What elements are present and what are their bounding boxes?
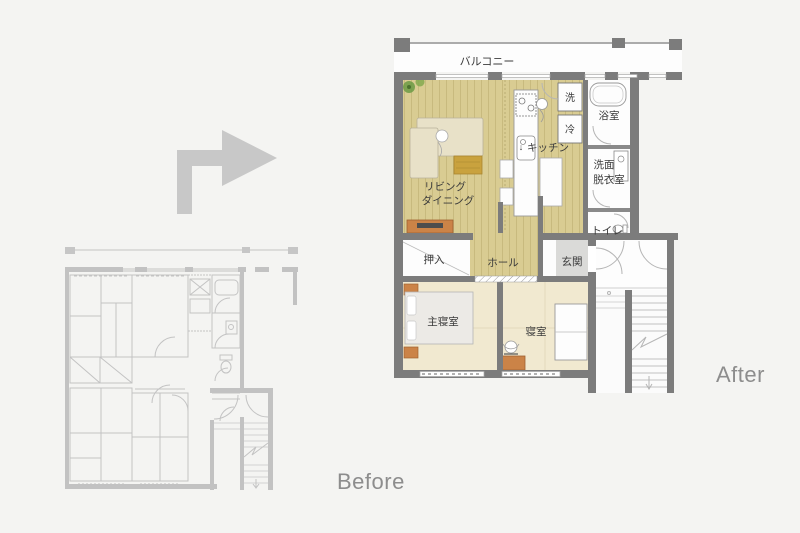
after-sliding-door <box>475 276 537 282</box>
room-label-living-1: リビング <box>424 180 466 193</box>
room-label-toilet: トイレ <box>591 225 623 237</box>
transform-arrow-icon <box>177 130 277 214</box>
room-label-bath: 浴室 <box>599 109 620 122</box>
room-label-hall: ホール <box>487 257 519 269</box>
room-label-washroom-1: 洗面 <box>594 159 615 171</box>
room-label-closet: 押入 <box>424 253 445 266</box>
before-floorplan <box>60 243 300 513</box>
after-caption: After <box>716 362 765 388</box>
room-label-kitchen: キッチン <box>527 142 569 154</box>
room-label-balcony: バルコニー <box>460 55 515 68</box>
room-label-bedroom: 寝室 <box>526 325 547 338</box>
room-label-entrance: 玄関 <box>562 255 583 268</box>
room-label-washroom-2: 脱衣室 <box>593 173 625 186</box>
room-label-fridge: 冷 <box>565 123 575 136</box>
room-label-living-2: ダイニング <box>422 194 475 207</box>
kitchen-arrow-icon: ↓ <box>519 142 524 152</box>
room-label-washer: 洗 <box>565 92 575 104</box>
floorplan-comparison-page: バルコニー リビング ダイニング ↓ キッチン 洗 冷 浴室 洗面 脱衣室 トイ… <box>0 0 800 533</box>
before-caption: Before <box>337 469 405 495</box>
after-floorplan: バルコニー リビング ダイニング ↓ キッチン 洗 冷 浴室 洗面 脱衣室 トイ… <box>390 38 690 395</box>
room-label-master-bedroom: 主寝室 <box>427 315 459 328</box>
